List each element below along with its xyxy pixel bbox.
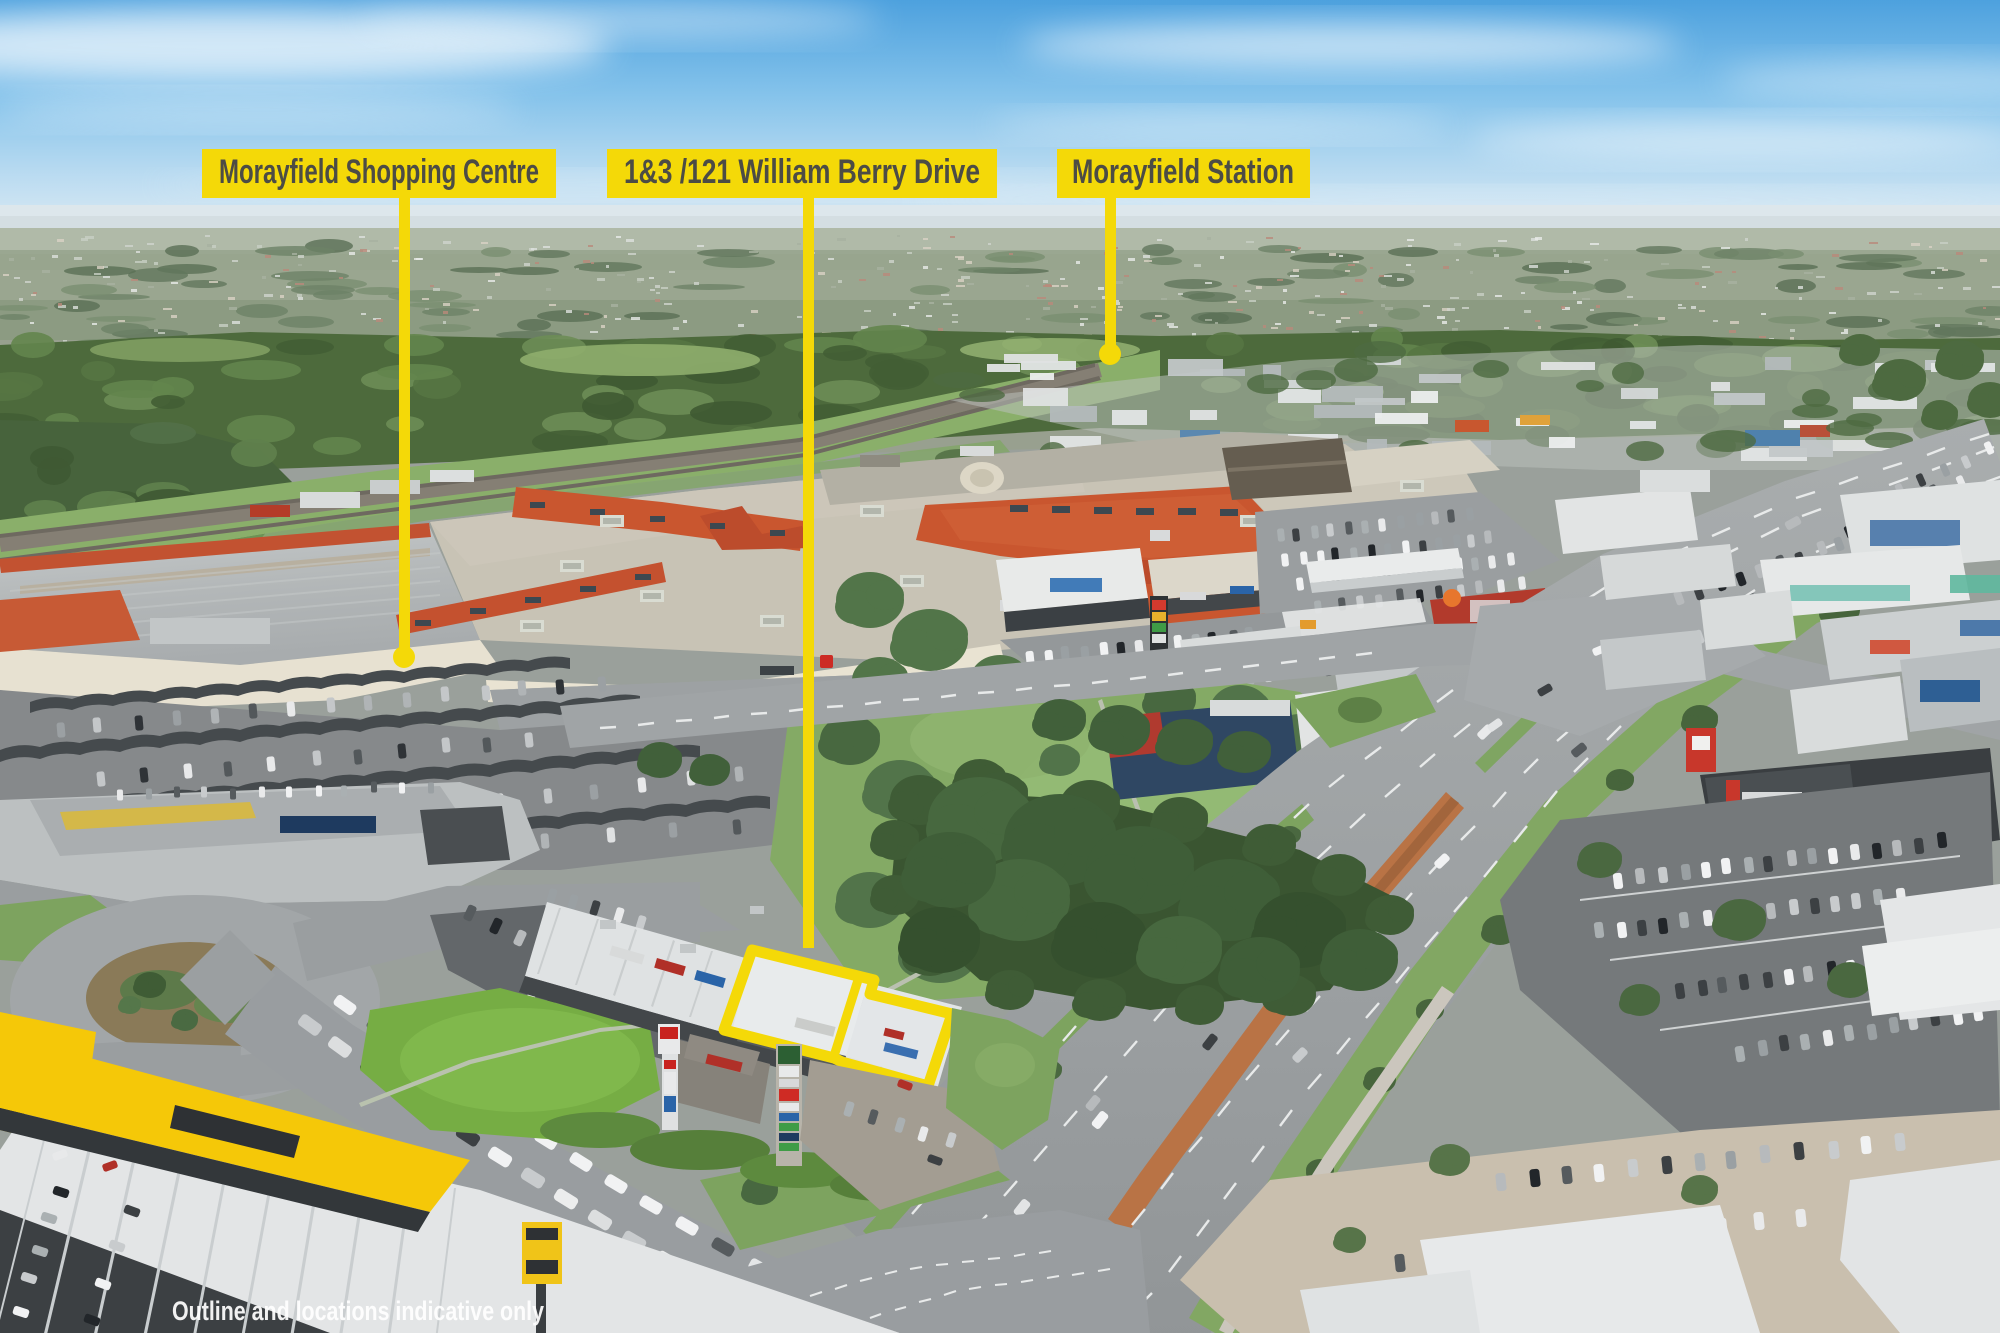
svg-text:Morayfield Station: Morayfield Station [1072, 153, 1294, 191]
svg-text:Outline and locations indicati: Outline and locations indicative only [172, 1296, 544, 1326]
svg-text:Morayfield Shopping Centre: Morayfield Shopping Centre [219, 153, 539, 191]
svg-text:1&3 /121 William Berry Drive: 1&3 /121 William Berry Drive [624, 153, 980, 191]
